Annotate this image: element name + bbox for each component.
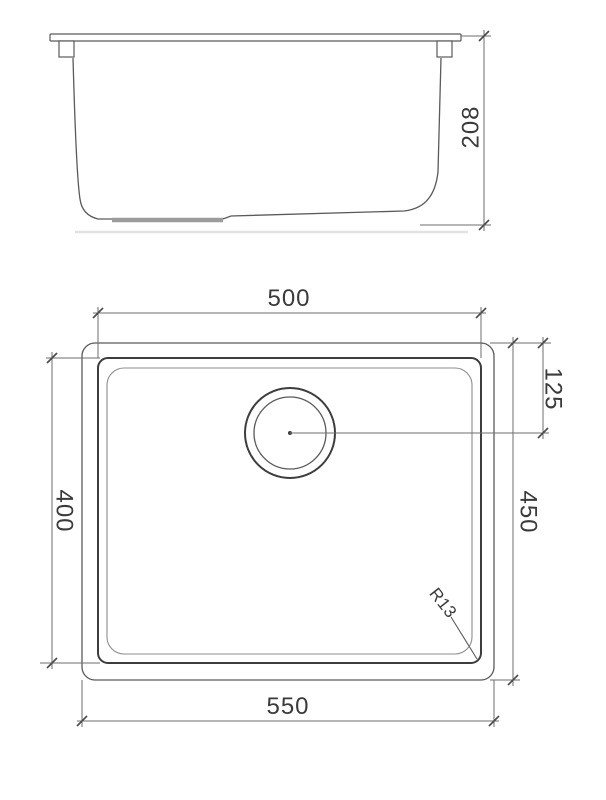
bowl-bottom-rect bbox=[107, 368, 472, 654]
side-elevation-view: 208 bbox=[50, 30, 491, 232]
outer-width-label: 550 bbox=[266, 693, 309, 720]
top-plan-view: 500 400 450 bbox=[40, 285, 567, 727]
outer-width-dimension: 550 bbox=[77, 680, 499, 727]
sink-body-outline bbox=[73, 58, 441, 219]
right-mounting-clip bbox=[437, 41, 452, 57]
outer-rim-rect bbox=[82, 343, 494, 680]
corner-radius-label: R13 bbox=[425, 584, 460, 621]
technical-drawing-page: 208 500 bbox=[0, 0, 606, 800]
corner-radius-callout: R13 bbox=[425, 584, 477, 659]
inner-depth-label: 400 bbox=[51, 489, 78, 532]
height-dimension-label: 208 bbox=[458, 105, 485, 148]
drain-offset-dimension: 125 bbox=[538, 337, 567, 439]
outer-depth-label: 450 bbox=[515, 490, 542, 533]
leader-line bbox=[451, 617, 477, 659]
drawing-canvas: 208 500 bbox=[0, 0, 606, 800]
drain-offset-label: 125 bbox=[540, 367, 567, 410]
inner-depth-dimension: 400 bbox=[40, 352, 100, 669]
rim-flange bbox=[50, 34, 461, 41]
drain bbox=[245, 388, 549, 478]
inner-width-dimension: 500 bbox=[93, 285, 486, 358]
left-mounting-clip bbox=[59, 41, 74, 57]
bowl-top-rect bbox=[98, 358, 481, 663]
height-dimension: 208 bbox=[420, 30, 491, 231]
inner-width-label: 500 bbox=[267, 285, 310, 312]
